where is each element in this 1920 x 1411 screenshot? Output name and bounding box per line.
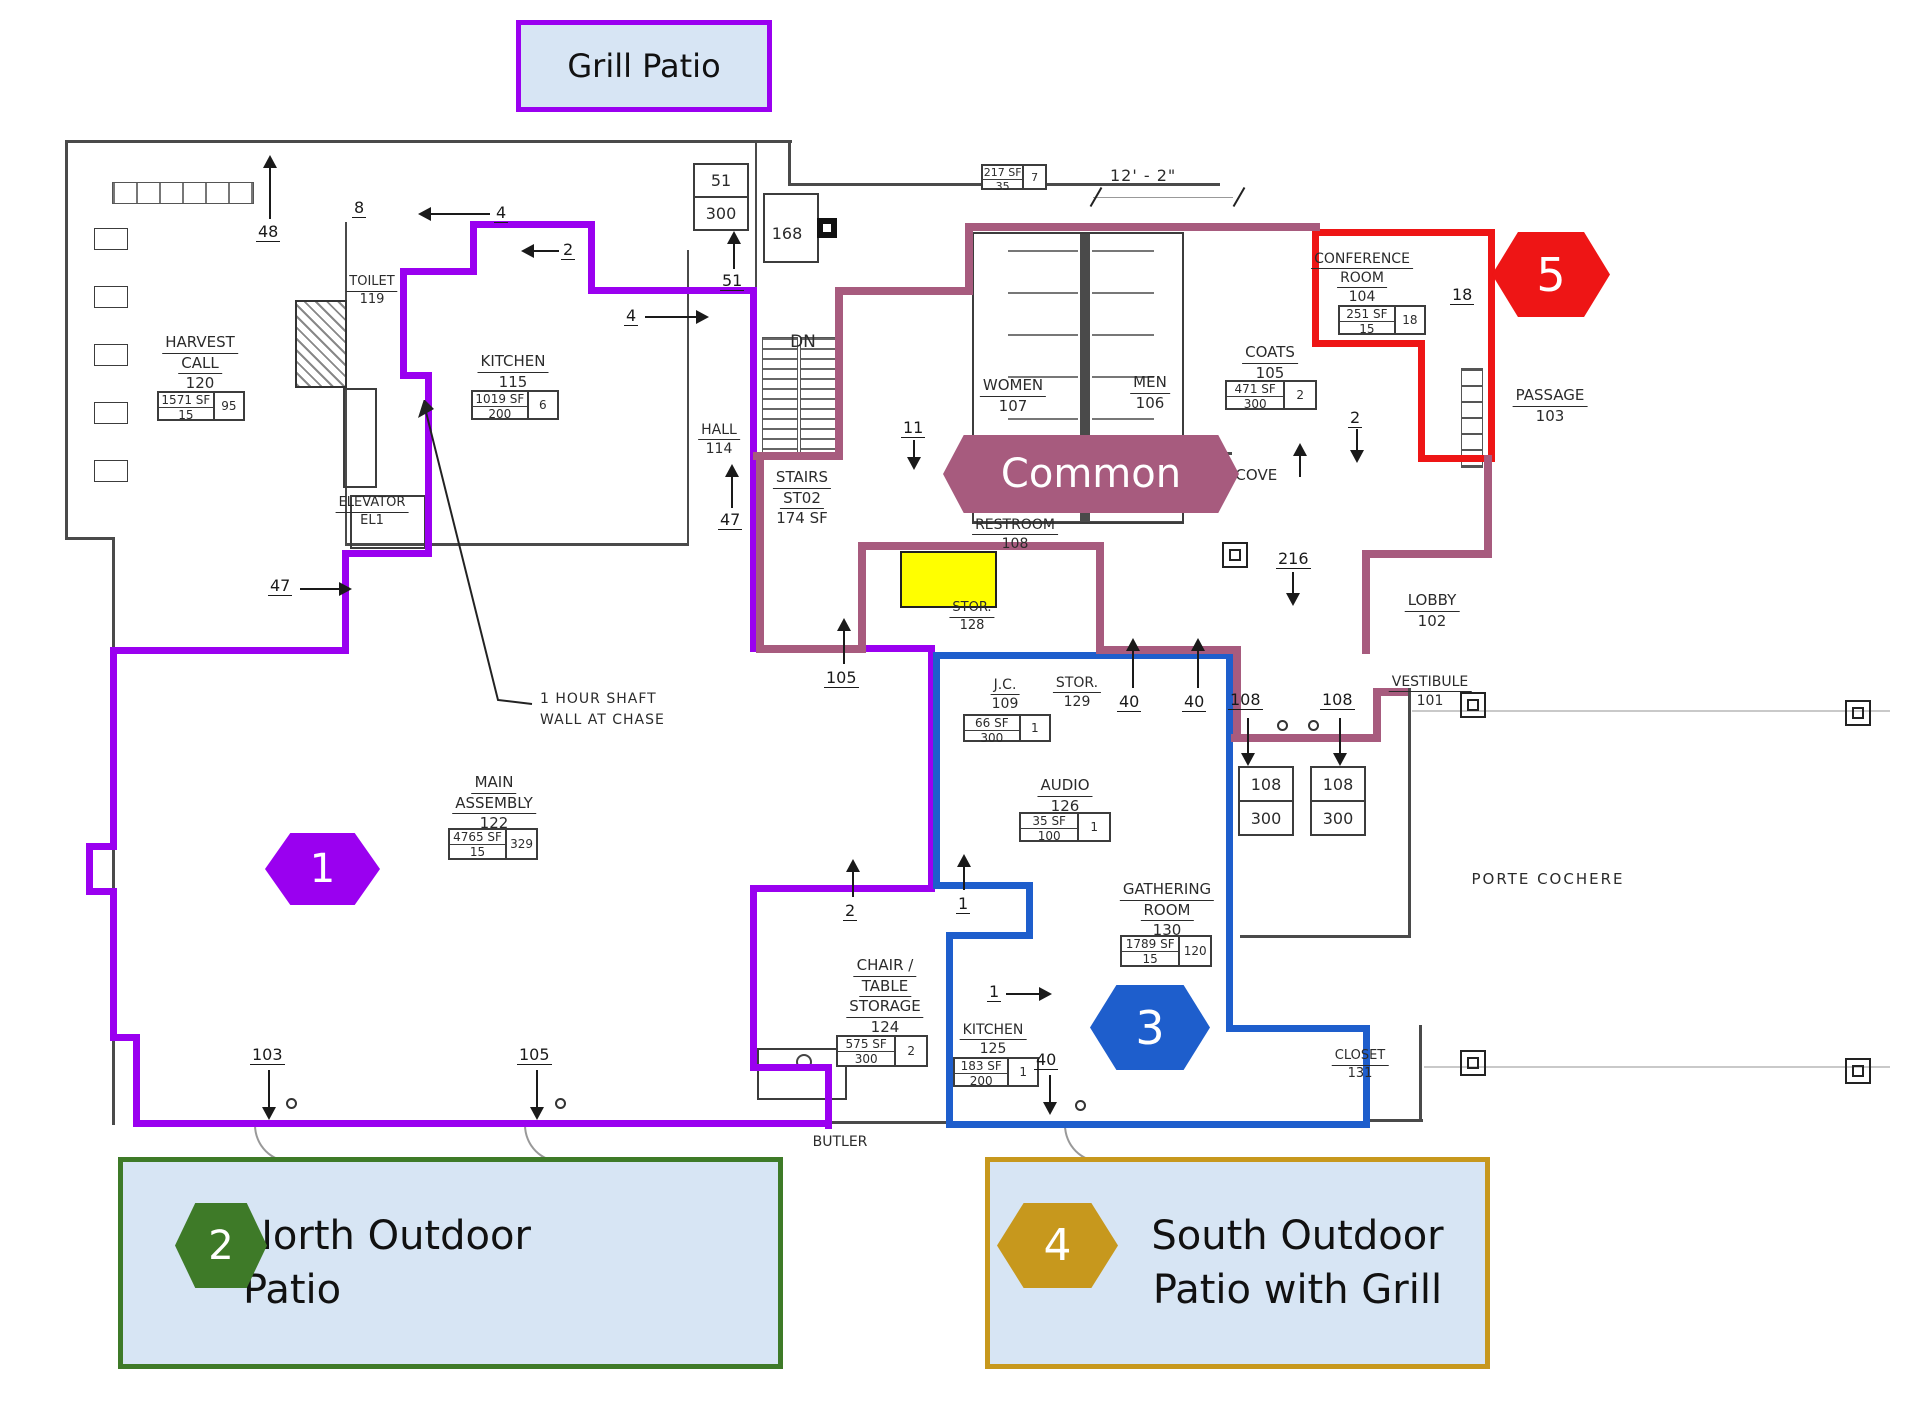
zone-outline-red	[1312, 340, 1425, 347]
annotation-arrow-line	[852, 871, 854, 897]
door-count-annotation: 40	[1117, 692, 1141, 712]
door-count-annotation: 47	[718, 510, 742, 530]
area-stat-box: 1789 SF15120	[1120, 935, 1212, 967]
zone-badge-2-number: 2	[208, 1223, 233, 1269]
area-stat-box: 4765 SF15329	[448, 828, 538, 860]
area-stat-box: 66 SF3001	[963, 714, 1051, 742]
wall-segment	[788, 140, 791, 186]
door-count-annotation: 48	[256, 222, 280, 242]
room-label: MAINASSEMBLY122	[452, 773, 536, 834]
area-stat-box: 1571 SF1595	[157, 391, 245, 421]
door-count-annotation: 216	[1276, 549, 1311, 569]
wall-cabinet	[94, 228, 128, 250]
zone-outline-mauve	[756, 452, 764, 652]
room-outline	[343, 388, 377, 488]
wall-segment	[1408, 688, 1411, 938]
up-arrow-icon	[1191, 638, 1205, 651]
room-label: VESTIBULE101	[1389, 673, 1472, 710]
wall-segment	[65, 140, 792, 143]
zone-outline-red	[1488, 229, 1495, 462]
area-stat-box: 251 SF1518	[1338, 305, 1426, 335]
room-label: BUTLER	[813, 1133, 868, 1151]
annotation-arrow-line	[733, 243, 735, 269]
capacity-stack-box: 108300	[1238, 766, 1294, 836]
room-label: ELEVATOREL1	[336, 495, 409, 530]
grill-patio-label: Grill Patio	[567, 47, 720, 85]
left-arrow-icon	[418, 207, 431, 221]
toilet-stalls	[1092, 250, 1154, 462]
equipment-square	[817, 218, 837, 238]
zone-outline-blue	[946, 1121, 1370, 1128]
zone-outline-mauve	[835, 287, 973, 295]
stair-treads	[800, 337, 839, 457]
door-count-annotation: 4	[494, 203, 508, 223]
north-patio-label: North Outdoor Patio	[243, 1162, 638, 1364]
room-label: STOR.129	[1053, 674, 1101, 711]
up-arrow-icon	[727, 231, 741, 244]
room-label: J.C.109	[991, 676, 1020, 713]
zone-outline-purple	[400, 268, 407, 379]
door-count-annotation: 105	[517, 1045, 552, 1065]
door-count-annotation: 40	[1182, 692, 1206, 712]
zone-outline-blue	[946, 932, 1033, 939]
zone-outline-mauve	[858, 542, 866, 652]
zone-outline-blue	[1231, 1025, 1370, 1032]
floor-plan-canvas: HARVESTCALL120TOILET119KITCHEN115HALL114…	[0, 0, 1920, 1411]
shaft-note-line2: WALL AT CHASE	[540, 712, 665, 728]
annotation-arrow-line	[533, 250, 559, 252]
zone-outline-blue	[1026, 882, 1033, 939]
annotation-arrow-line	[1356, 429, 1358, 451]
wall-segment	[687, 250, 689, 546]
door-count-annotation: 47	[268, 576, 292, 596]
zone-outline-purple	[470, 221, 477, 275]
zone-outline-purple	[750, 885, 935, 892]
annotation-arrow-line	[1299, 455, 1301, 477]
zone-outline-mauve	[1373, 688, 1381, 742]
zone-outline-mauve	[1362, 550, 1370, 654]
zone-outline-mauve	[753, 452, 843, 460]
annotation-arrow-line	[1292, 572, 1294, 594]
door-count-annotation: 51	[720, 271, 744, 291]
capacity-stack-box: 51300	[693, 163, 749, 231]
zone-outline-blue	[933, 652, 940, 889]
up-arrow-icon	[263, 155, 277, 168]
wall-cabinet	[94, 460, 128, 482]
annotation-arrow-line	[1339, 718, 1341, 754]
door-pivot	[555, 1098, 566, 1109]
area-stat-box: 183 SF2001	[953, 1057, 1039, 1087]
zone-outline-mauve	[835, 287, 843, 460]
door-count-annotation: 108	[1320, 690, 1355, 710]
wall-segment	[65, 140, 68, 540]
zone-outline-purple	[750, 885, 757, 1071]
zone-outline-red	[1312, 229, 1495, 236]
right-arrow-icon	[696, 310, 709, 324]
room-label: RESTROOM108	[972, 516, 1058, 553]
common-zone-label: Common	[1001, 451, 1181, 497]
south-patio-label: South Outdoor Patio with Grill	[1130, 1162, 1465, 1364]
wall-cabinet	[94, 344, 128, 366]
zone-outline-mauve	[965, 223, 973, 294]
annotation-arrow-line	[430, 213, 490, 215]
annotation-arrow-line	[843, 630, 845, 664]
annotation-arrow-line	[913, 440, 915, 458]
door-count-annotation: 105	[824, 668, 859, 688]
room-label: HALL114	[698, 421, 740, 458]
door-count-annotation: 2	[843, 901, 857, 921]
right-arrow-icon	[1039, 987, 1052, 1001]
zone-outline-mauve	[1362, 550, 1492, 558]
passage-shelving	[1461, 368, 1483, 468]
chase-hatch	[295, 300, 347, 388]
annotation-arrow-line	[300, 588, 340, 590]
room-label: STAIRSST02174 SF	[773, 468, 831, 529]
wall-segment	[755, 140, 757, 290]
zone-badge-1-number: 1	[310, 846, 335, 892]
area-stat-box: 471 SF3002	[1225, 380, 1317, 410]
down-arrow-icon	[1350, 450, 1364, 463]
door-pivot	[1277, 720, 1288, 731]
room-label: HARVESTCALL120	[162, 333, 238, 394]
room-label: LOBBY102	[1405, 591, 1460, 631]
closet-cells	[112, 182, 254, 204]
room-label: AUDIO126	[1037, 776, 1092, 816]
wall-segment	[1240, 935, 1410, 938]
door-count-annotation: 1	[956, 894, 970, 914]
down-arrow-icon	[1333, 753, 1347, 766]
grill-patio-box[interactable]: Grill Patio	[516, 20, 772, 112]
wall-segment	[832, 1121, 950, 1124]
annotation-arrow-line	[268, 1070, 270, 1108]
annotation-arrow-line	[645, 316, 697, 318]
zone-outline-purple	[470, 221, 595, 228]
zone-outline-blue	[933, 882, 1033, 889]
wall-segment	[1363, 1119, 1423, 1122]
up-arrow-icon	[957, 854, 971, 867]
zone-outline-purple	[400, 268, 476, 275]
annotation-arrow-line	[536, 1070, 538, 1108]
room-label: CONFERENCEROOM104	[1311, 250, 1413, 307]
room-label: COATS105	[1242, 343, 1298, 383]
zone-outline-purple	[133, 1034, 140, 1127]
up-arrow-icon	[846, 859, 860, 872]
zone-outline-mauve	[1096, 646, 1239, 654]
room-label: 168	[772, 224, 803, 245]
room-label: DN	[790, 331, 816, 353]
zone-badge-4-number: 4	[1044, 1220, 1072, 1271]
zone-outline-mauve	[1231, 734, 1381, 742]
area-stat-box: 217 SF357	[981, 164, 1047, 190]
room-label: KITCHEN115	[478, 352, 549, 392]
door-pivot	[1308, 720, 1319, 731]
annotation-arrow-line	[963, 866, 965, 890]
column-symbol	[1845, 700, 1871, 726]
column-symbol	[1460, 1050, 1486, 1076]
annotation-arrow-line	[1132, 650, 1134, 688]
up-arrow-icon	[1293, 443, 1307, 456]
down-arrow-icon	[907, 457, 921, 470]
zone-outline-purple	[133, 1120, 832, 1127]
up-arrow-icon	[1126, 638, 1140, 651]
zone-outline-purple	[588, 221, 595, 294]
dimension-line	[1093, 197, 1233, 198]
leader-line	[416, 400, 536, 712]
zone-outline-mauve	[756, 645, 866, 653]
door-pivot	[286, 1098, 297, 1109]
toilet-stalls	[1008, 250, 1078, 462]
annotation-arrow-line	[1247, 718, 1249, 754]
zone-outline-mauve	[1484, 455, 1492, 558]
down-arrow-icon	[262, 1107, 276, 1120]
wall-segment	[1419, 1025, 1422, 1122]
door-count-annotation: 18	[1450, 285, 1474, 305]
up-arrow-icon	[837, 618, 851, 631]
column-symbol	[1845, 1058, 1871, 1084]
down-arrow-icon	[1043, 1102, 1057, 1115]
zone-badge-5-number: 5	[1536, 248, 1565, 302]
room-label: STOR.128	[949, 600, 994, 635]
door-count-annotation: 40	[1034, 1050, 1058, 1070]
door-count-annotation: 11	[901, 418, 925, 438]
porte-cochere-line	[1424, 1066, 1890, 1068]
area-stat-box: 35 SF1001	[1019, 812, 1111, 842]
door-count-annotation: 2	[561, 240, 575, 260]
door-count-annotation: 108	[1228, 690, 1263, 710]
zone-outline-purple	[110, 647, 348, 654]
up-arrow-icon	[725, 464, 739, 477]
common-zone-banner[interactable]: Common	[943, 435, 1239, 513]
room-label: PORTE COCHERE	[1471, 870, 1624, 890]
left-arrow-icon	[521, 244, 534, 258]
zone-outline-mauve	[965, 223, 1320, 231]
shaft-note-line1: 1 HOUR SHAFT	[540, 691, 657, 707]
dimension-tick	[1233, 187, 1246, 207]
dimension-label: 12' - 2"	[1110, 166, 1176, 185]
down-arrow-icon	[1241, 753, 1255, 766]
room-label: TOILET119	[346, 274, 397, 309]
zone-badge-3[interactable]: 3	[1090, 985, 1210, 1070]
door-count-annotation: 2	[1348, 408, 1362, 428]
zone-badge-5[interactable]: 5	[1492, 232, 1610, 317]
room-label: MEN106	[1130, 373, 1170, 413]
annotation-arrow-line	[1049, 1075, 1051, 1103]
door-count-annotation: 4	[624, 306, 638, 326]
door-count-annotation: 8	[352, 198, 366, 218]
annotation-arrow-line	[1006, 993, 1040, 995]
wall-cabinet	[94, 402, 128, 424]
wall-cabinet	[94, 286, 128, 308]
zone-badge-3-number: 3	[1135, 1001, 1164, 1055]
door-count-annotation: 1	[987, 982, 1001, 1002]
zone-outline-purple	[86, 843, 93, 895]
door-count-annotation: 103	[250, 1045, 285, 1065]
room-label: GATHERINGROOM130	[1120, 880, 1214, 941]
right-arrow-icon	[339, 582, 352, 596]
down-arrow-icon	[1286, 593, 1300, 606]
area-stat-box: 575 SF3002	[836, 1035, 928, 1067]
down-arrow-icon	[530, 1107, 544, 1120]
zone-outline-purple	[750, 1064, 832, 1071]
room-label: CLOSET131	[1332, 1048, 1389, 1083]
room-label: CHAIR /TABLESTORAGE124	[846, 956, 923, 1037]
equipment-square-inner	[823, 224, 831, 232]
wall-segment	[65, 537, 115, 540]
zone-outline-red	[1418, 340, 1425, 462]
column-symbol	[1222, 542, 1248, 568]
room-label: PASSAGE103	[1513, 386, 1588, 426]
stair-treads	[762, 337, 798, 457]
zone-badge-1[interactable]: 1	[265, 833, 380, 905]
zone-outline-mauve	[1096, 542, 1104, 654]
zone-outline-purple	[110, 888, 117, 1041]
zone-outline-purple	[110, 647, 117, 850]
zone-outline-purple	[342, 550, 349, 654]
door-pivot	[1075, 1100, 1086, 1111]
annotation-arrow-line	[1197, 650, 1199, 688]
room-label: KITCHEN125	[960, 1021, 1027, 1058]
capacity-stack-box: 108300	[1310, 766, 1366, 836]
annotation-arrow-line	[269, 167, 271, 219]
room-label: WOMEN107	[980, 376, 1046, 416]
zone-outline-blue	[946, 932, 953, 1128]
annotation-arrow-line	[731, 476, 733, 508]
